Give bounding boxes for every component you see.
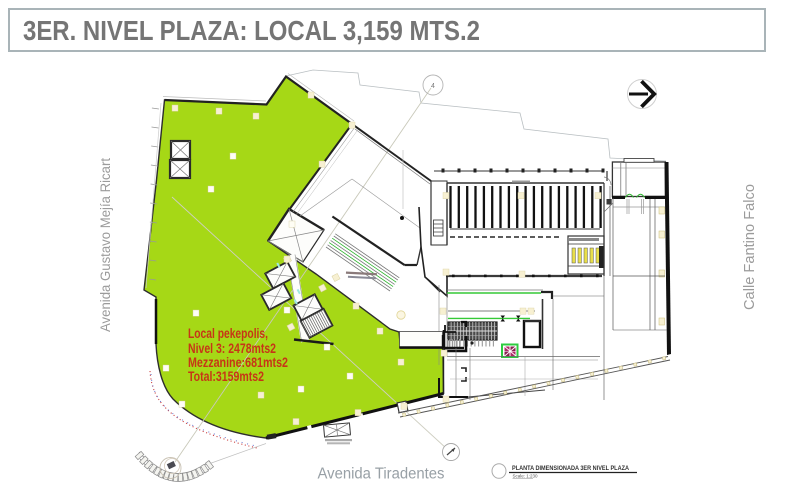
svg-text:Mezzanine:681mts2: Mezzanine:681mts2 xyxy=(188,355,288,370)
svg-text:Total:3159mts2: Total:3159mts2 xyxy=(188,369,264,384)
svg-text:Avenida Gustavo Mejía Ricart: Avenida Gustavo Mejía Ricart xyxy=(98,158,113,332)
svg-text:Local pekepolis,: Local pekepolis, xyxy=(188,326,268,341)
svg-text:PLANTA DIMENSIONADA 3ER NIVEL: PLANTA DIMENSIONADA 3ER NIVEL PLAZA xyxy=(512,465,629,472)
svg-text:Avenida Tiradentes: Avenida Tiradentes xyxy=(318,466,445,483)
svg-text:Calle Fantino Falco: Calle Fantino Falco xyxy=(742,184,758,310)
svg-text:Scale: 1:230: Scale: 1:230 xyxy=(513,474,539,479)
svg-text:4: 4 xyxy=(431,83,435,90)
svg-text:Nivel 3: 2478mts2: Nivel 3: 2478mts2 xyxy=(188,341,276,356)
